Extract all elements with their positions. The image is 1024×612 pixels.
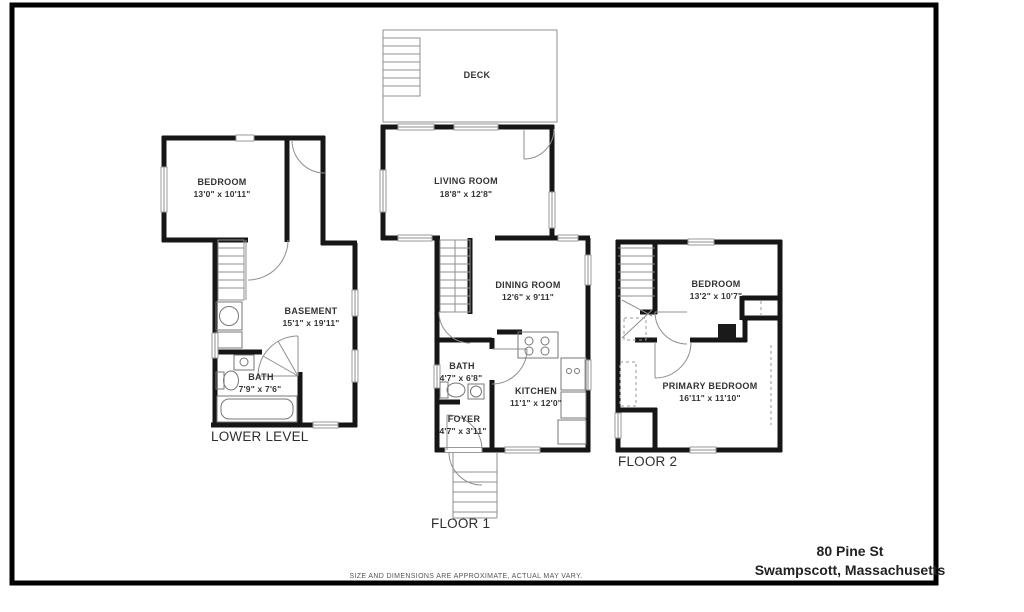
lower-level-label: LOWER LEVEL <box>211 429 309 444</box>
floor-2-stairs <box>618 248 655 340</box>
room-name-primary-bedroom: PRIMARY BEDROOM <box>662 381 757 391</box>
floor-2-windows <box>615 239 716 453</box>
bathtub <box>217 396 297 422</box>
room-dims-foyer: 4'7" x 3'11" <box>439 426 486 436</box>
room-dims-primary-bedroom: 16'11" x 11'10" <box>679 393 740 403</box>
lower-level-plan: BEDROOM 13'0" x 10'11" BASEMENT 15'1" x … <box>161 135 358 444</box>
stove <box>518 332 558 358</box>
exterior-stairs <box>453 452 497 518</box>
room-name-living: LIVING ROOM <box>434 176 498 186</box>
counter <box>561 392 586 418</box>
floorplan-page: BEDROOM 13'0" x 10'11" BASEMENT 15'1" x … <box>0 0 1024 612</box>
room-dims-lower-bath: 7'9" x 7'6" <box>239 384 282 394</box>
bath-sink <box>234 355 254 370</box>
disclaimer-text: SIZE AND DIMENSIONS ARE APPROXIMATE, ACT… <box>349 573 582 580</box>
floor-1-label: FLOOR 1 <box>431 516 490 531</box>
room-name-kitchen: KITCHEN <box>515 386 557 396</box>
fridge <box>561 358 586 390</box>
dryer <box>216 332 242 348</box>
toilet-bowl <box>447 383 465 397</box>
room-name-lower-bedroom: BEDROOM <box>197 177 246 187</box>
room-name-floor2-bedroom: BEDROOM <box>691 279 740 289</box>
lower-level-stairs <box>218 240 246 300</box>
floor-plan-canvas: BEDROOM 13'0" x 10'11" BASEMENT 15'1" x … <box>0 0 1024 612</box>
room-dims-living: 18'8" x 12'8" <box>440 189 493 199</box>
room-dims-kitchen: 11'1" x 12'0" <box>510 398 562 408</box>
floor-2-label: FLOOR 2 <box>618 454 677 469</box>
room-dims-basement: 15'1" x 19'11" <box>283 318 340 328</box>
address-line-1: 80 Pine St <box>817 543 884 559</box>
room-name-floor1-bath: BATH <box>449 361 475 371</box>
toilet-bowl <box>224 371 239 390</box>
floor-1-stairs <box>440 240 470 312</box>
chimney <box>718 324 736 340</box>
room-dims-dining: 12'6" x 9'11" <box>502 292 554 302</box>
floor-1-plan: DECK LIVING ROOM 18'8" x 12'8" DINING RO… <box>380 30 591 531</box>
floor-2-doors <box>655 312 691 378</box>
border-frame <box>12 5 936 583</box>
room-name-basement: BASEMENT <box>285 306 338 316</box>
room-name-dining: DINING ROOM <box>495 280 560 290</box>
floor-2-plan: BEDROOM 13'2" x 10'7" PRIMARY BEDROOM 16… <box>615 239 782 469</box>
room-name-foyer: FOYER <box>448 414 481 424</box>
room-dims-floor2-bedroom: 13'2" x 10'7" <box>690 291 743 301</box>
cabinet <box>558 420 586 444</box>
address-line-2: Swampscott, Massachusetts <box>755 562 946 578</box>
room-name-deck: DECK <box>464 70 491 80</box>
floor1-bath-fixtures <box>440 382 484 399</box>
room-name-lower-bath: BATH <box>248 372 274 382</box>
room-dims-floor1-bath: 4'7" x 6'8" <box>440 373 483 383</box>
room-dims-lower-bedroom: 13'0" x 10'11" <box>194 189 251 199</box>
